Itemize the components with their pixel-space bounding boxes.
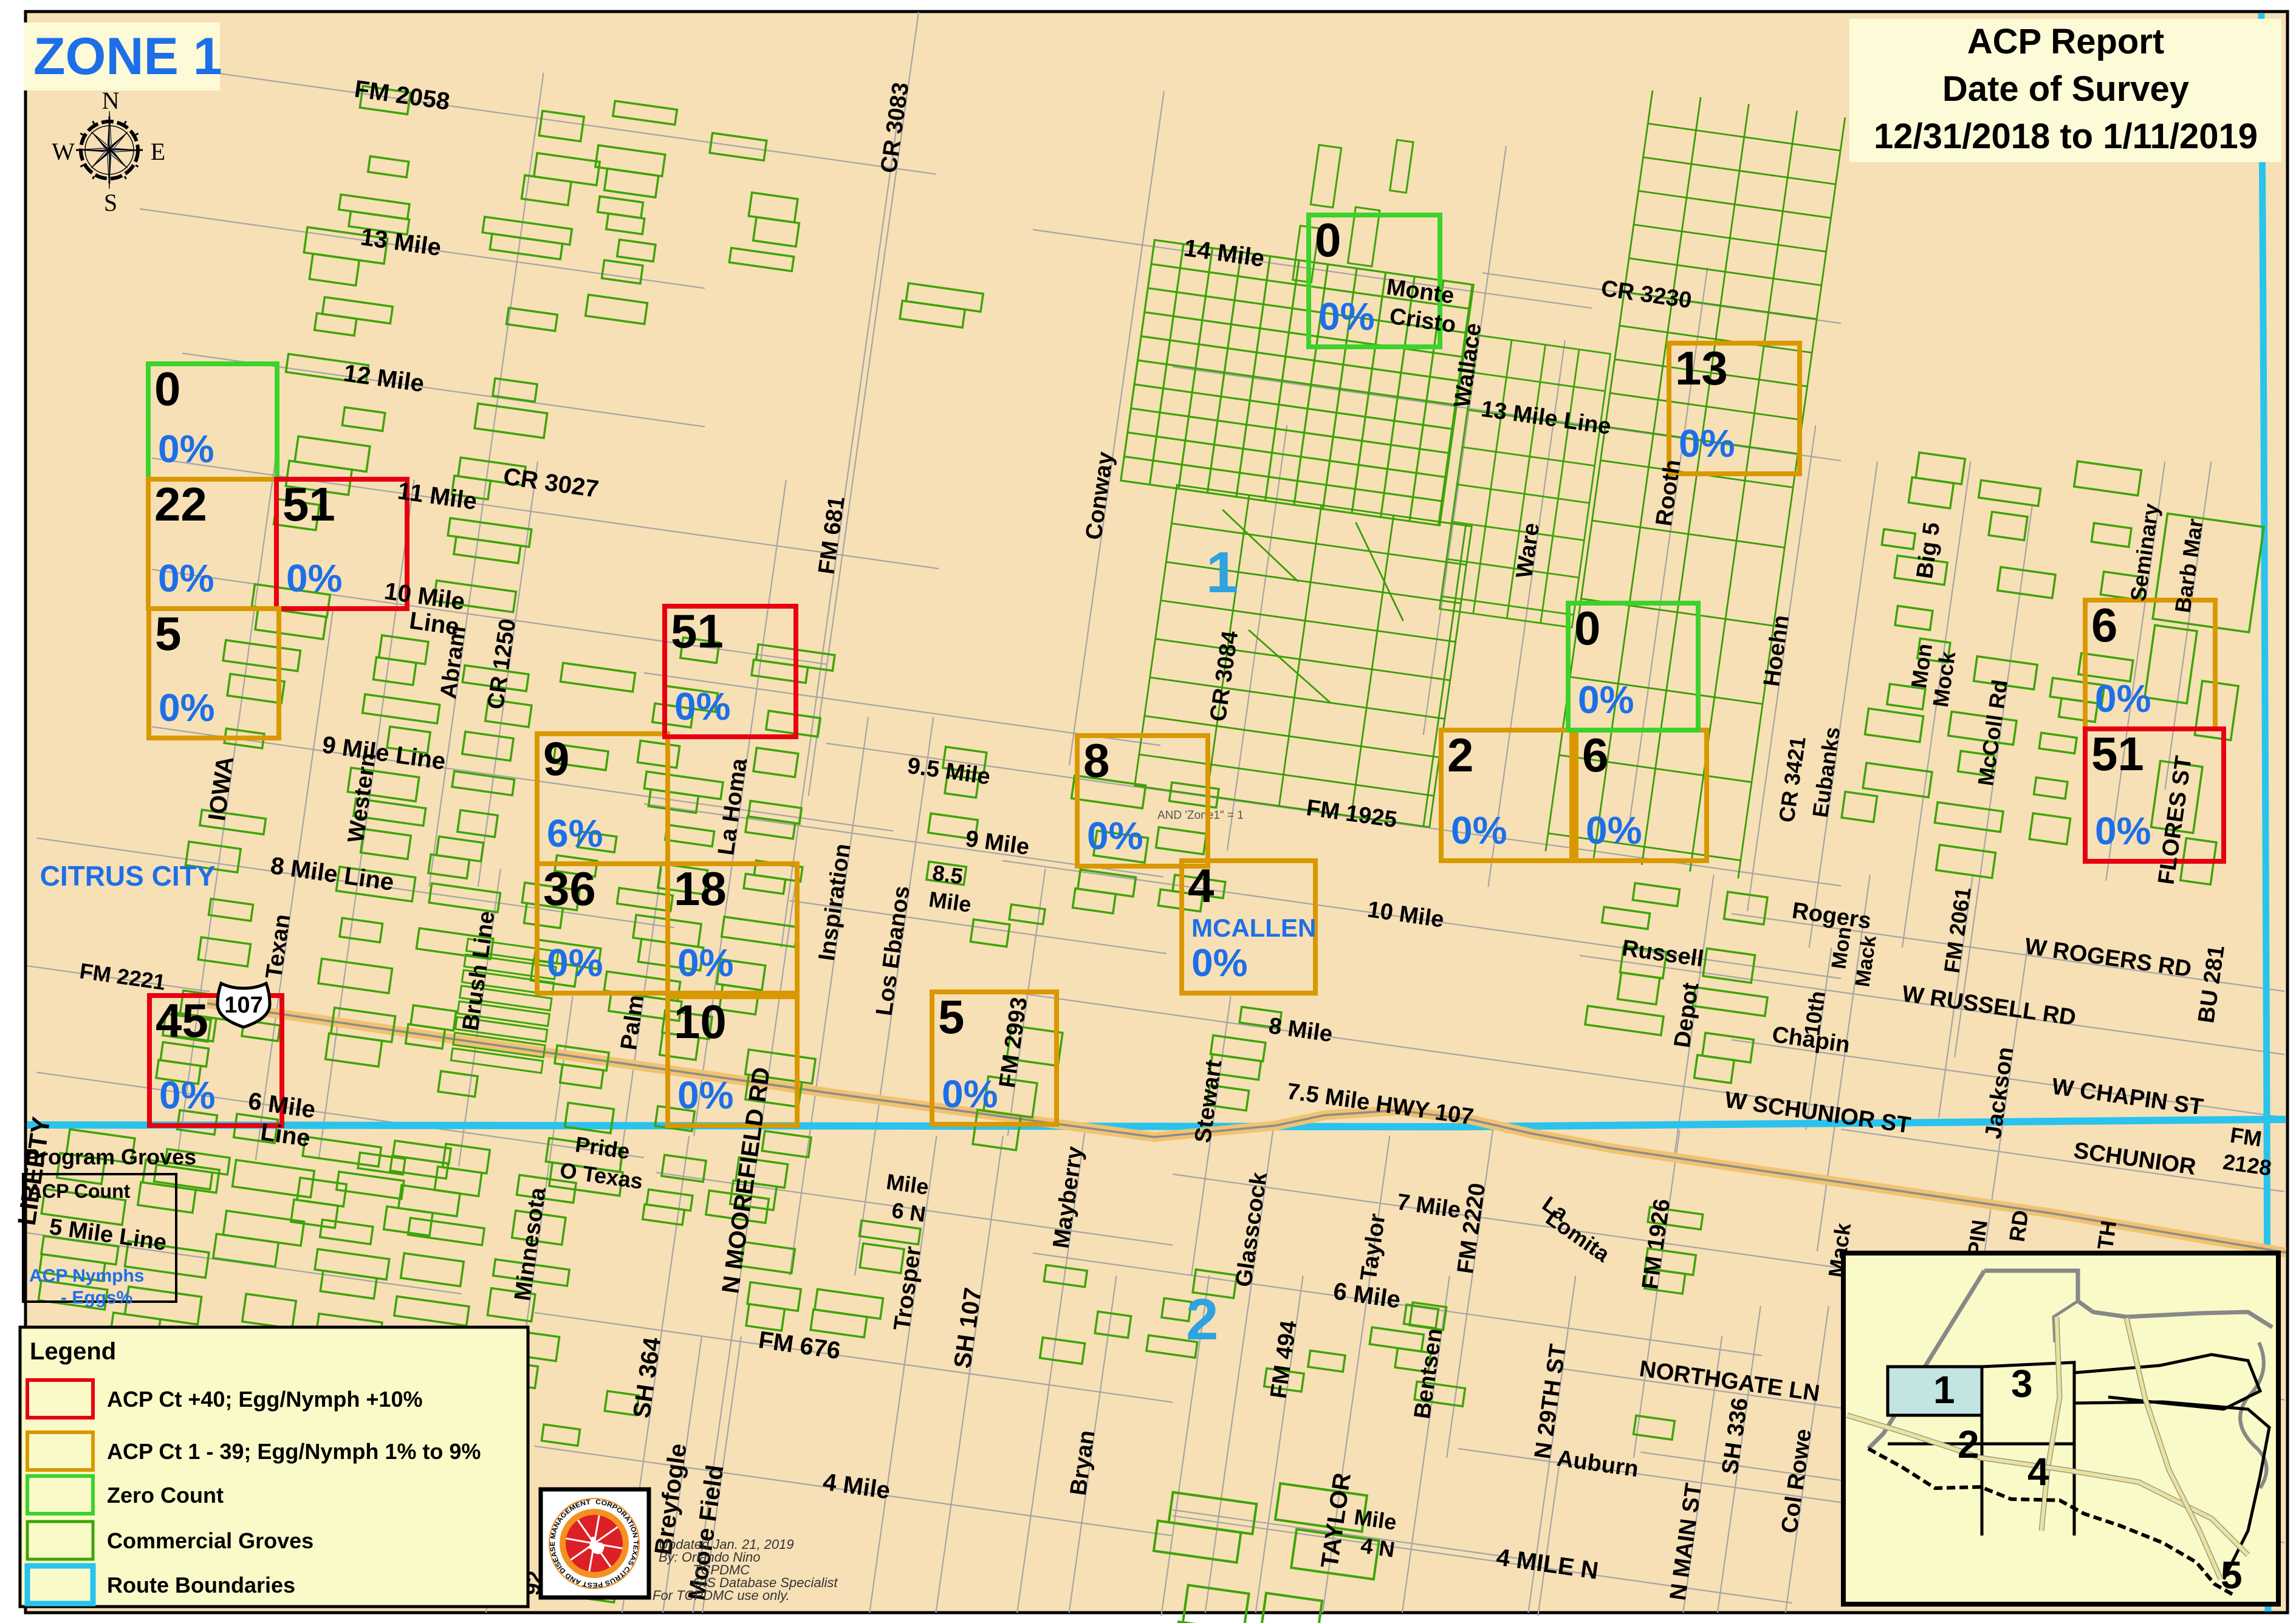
- svg-text:E: E: [151, 138, 165, 165]
- svg-text:RD: RD: [2004, 1209, 2034, 1243]
- svg-text:0%: 0%: [677, 1073, 734, 1117]
- svg-text:0%: 0%: [1578, 678, 1634, 722]
- svg-text:0%: 0%: [1679, 422, 1735, 465]
- svg-text:CITRUS CITY: CITRUS CITY: [40, 860, 216, 892]
- svg-text:FM: FM: [2229, 1122, 2263, 1152]
- svg-text:0%: 0%: [1087, 814, 1143, 858]
- svg-text:Commercial Groves: Commercial Groves: [107, 1528, 314, 1553]
- svg-text:N: N: [102, 87, 120, 114]
- svg-text:S: S: [104, 189, 117, 216]
- svg-text:5: 5: [2221, 1553, 2243, 1597]
- svg-text:36: 36: [543, 862, 596, 915]
- svg-text:0%: 0%: [547, 941, 603, 985]
- svg-text:Program Groves: Program Groves: [25, 1144, 196, 1169]
- svg-text:0%: 0%: [1451, 808, 1507, 852]
- svg-text:ACP Ct +40; Egg/Nymph +10%: ACP Ct +40; Egg/Nymph +10%: [107, 1387, 423, 1412]
- svg-text:0%: 0%: [286, 556, 343, 600]
- svg-text:45: 45: [156, 994, 208, 1047]
- svg-text:51: 51: [2091, 727, 2144, 781]
- svg-text:Legend: Legend: [30, 1338, 116, 1365]
- svg-text:0%: 0%: [1318, 295, 1375, 338]
- svg-text:ACP Nymphs: ACP Nymphs: [29, 1266, 145, 1286]
- svg-text:Date of Survey: Date of Survey: [1942, 69, 2189, 109]
- svg-text:0%: 0%: [1191, 941, 1248, 985]
- svg-text:0: 0: [154, 362, 180, 415]
- svg-text:4: 4: [2027, 1450, 2049, 1494]
- svg-text:13: 13: [1675, 341, 1728, 395]
- svg-text:8.5: 8.5: [931, 860, 964, 889]
- svg-text:5: 5: [155, 607, 181, 660]
- svg-text:10: 10: [674, 995, 727, 1048]
- svg-text:TH: TH: [2092, 1219, 2121, 1251]
- svg-text:51: 51: [283, 477, 335, 531]
- svg-text:ACP Ct 1 - 39; Egg/Nymph 1% to: ACP Ct 1 - 39; Egg/Nymph 1% to 9%: [107, 1439, 481, 1464]
- svg-text:3: 3: [2011, 1362, 2033, 1406]
- svg-text:107: 107: [224, 993, 262, 1018]
- svg-text:51: 51: [671, 604, 724, 658]
- svg-text:9: 9: [543, 732, 569, 785]
- svg-text:Zero Count: Zero Count: [107, 1483, 224, 1508]
- svg-text:5: 5: [938, 990, 964, 1044]
- svg-text:2: 2: [1958, 1423, 1979, 1466]
- svg-text:0: 0: [1315, 213, 1341, 267]
- svg-text:0%: 0%: [942, 1072, 998, 1116]
- svg-text:ACP Count: ACP Count: [28, 1180, 131, 1202]
- svg-text:1: 1: [1206, 540, 1238, 605]
- svg-text:0%: 0%: [158, 556, 214, 600]
- svg-text:18: 18: [674, 862, 727, 915]
- svg-text:6 N: 6 N: [890, 1197, 927, 1226]
- svg-text:Route Boundaries: Route Boundaries: [107, 1573, 295, 1597]
- svg-text:1: 1: [1933, 1368, 1955, 1412]
- svg-text:0: 0: [1574, 601, 1600, 655]
- svg-text:4 N: 4 N: [1359, 1532, 1396, 1562]
- svg-text:MCALLEN: MCALLEN: [1191, 914, 1316, 942]
- svg-text:6: 6: [1582, 728, 1608, 782]
- svg-text:ZONE 1: ZONE 1: [33, 27, 222, 86]
- svg-text:0%: 0%: [674, 685, 731, 728]
- svg-text:For TCPDMC use only.: For TCPDMC use only.: [653, 1588, 790, 1603]
- svg-text:22: 22: [154, 477, 207, 531]
- svg-text:0%: 0%: [1586, 808, 1642, 852]
- svg-text:6%: 6%: [547, 811, 603, 855]
- svg-text:0%: 0%: [677, 941, 734, 985]
- svg-text:0%: 0%: [2095, 809, 2151, 853]
- svg-text:12/31/2018 to 1/11/2019: 12/31/2018 to 1/11/2019: [1874, 117, 2258, 156]
- svg-text:2: 2: [1447, 728, 1473, 782]
- svg-text:2: 2: [1186, 1287, 1218, 1352]
- svg-text:0%: 0%: [158, 427, 214, 471]
- svg-text:8: 8: [1083, 734, 1109, 787]
- svg-text:6: 6: [2091, 598, 2117, 652]
- svg-text:4: 4: [1188, 859, 1214, 912]
- svg-text:0%: 0%: [159, 1073, 216, 1117]
- svg-text:0%: 0%: [2095, 677, 2151, 720]
- svg-text:- Eggs%: - Eggs%: [61, 1288, 132, 1308]
- svg-text:W: W: [52, 138, 75, 165]
- svg-text:0%: 0%: [159, 686, 215, 729]
- svg-text:ACP Report: ACP Report: [1967, 22, 2164, 61]
- svg-text:AND 'Zone1" = 1: AND 'Zone1" = 1: [1157, 809, 1244, 822]
